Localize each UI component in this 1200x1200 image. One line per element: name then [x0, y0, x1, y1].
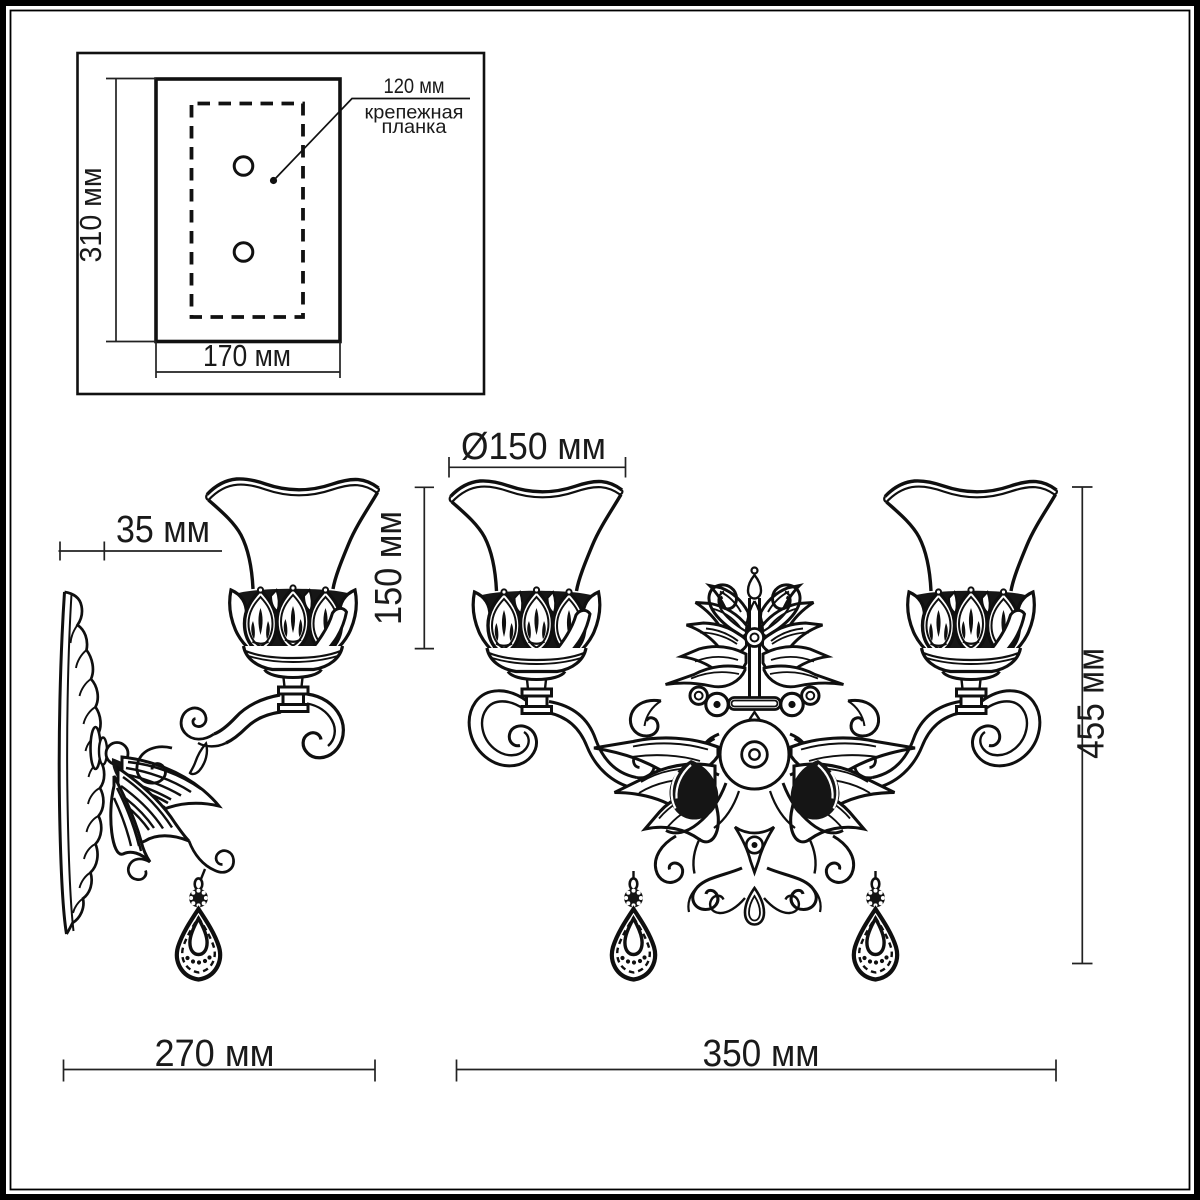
svg-text:35 мм: 35 мм	[116, 509, 210, 551]
svg-text:310 мм: 310 мм	[73, 168, 108, 263]
svg-text:120 мм: 120 мм	[384, 75, 445, 98]
svg-text:Ø150 мм: Ø150 мм	[461, 426, 606, 468]
svg-text:планка: планка	[382, 116, 447, 138]
svg-text:350 мм: 350 мм	[703, 1033, 820, 1075]
svg-text:150 мм: 150 мм	[368, 511, 410, 625]
svg-text:170 мм: 170 мм	[203, 338, 291, 373]
svg-text:455 мм: 455 мм	[1071, 648, 1113, 759]
svg-text:270 мм: 270 мм	[155, 1033, 275, 1075]
